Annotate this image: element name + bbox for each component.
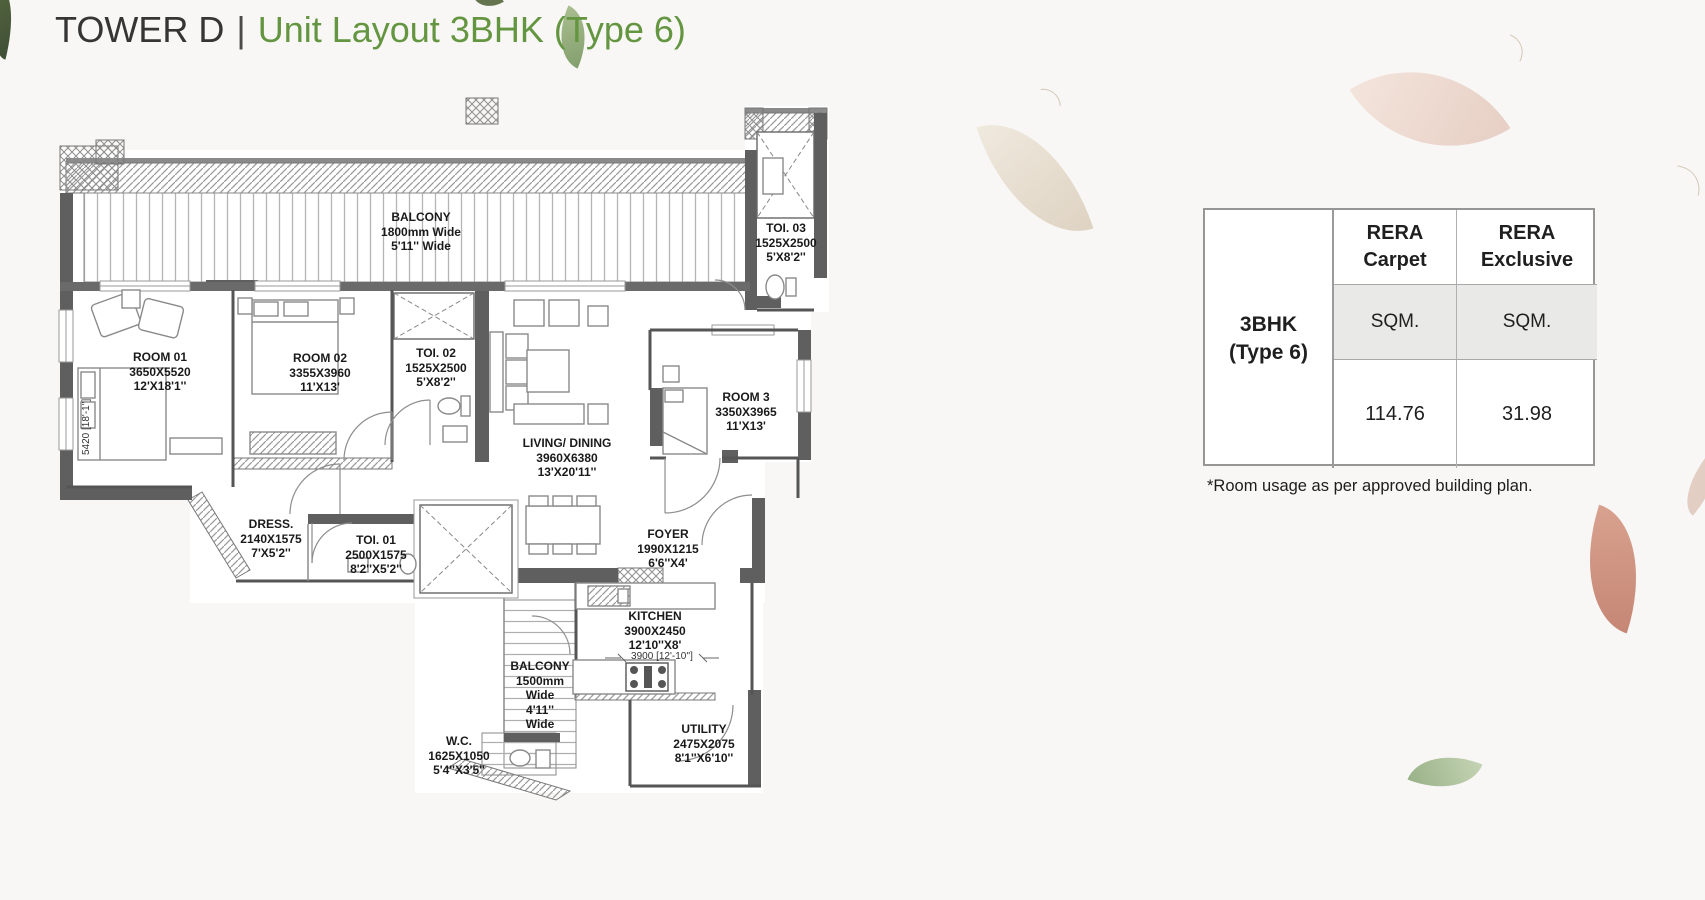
kitchen-dimension-note: 3900 [12'-10''] — [631, 650, 693, 665]
footnote: *Room usage as per approved building pla… — [1207, 477, 1533, 496]
room-label-toi-03: TOI. 03 1525X2500 5'X8'2'' — [755, 221, 816, 265]
table-value-exclusive: 31.98 — [1457, 360, 1597, 468]
table-header-rera-exclusive: RERA Exclusive — [1457, 210, 1597, 285]
room-label-dress: DRESS. 2140X1575 7'X5'2'' — [240, 517, 301, 561]
table-value-carpet: 114.76 — [1334, 360, 1457, 468]
title-separator: | — [236, 9, 245, 50]
rera-area-table: 3BHK (Type 6) RERA Carpet RERA Exclusive… — [1203, 208, 1595, 466]
room-label-toi-02: TOI. 02 1525X2500 5'X8'2'' — [405, 346, 466, 390]
table-row-header: 3BHK (Type 6) — [1205, 210, 1334, 468]
room-label-room-3: ROOM 3 3350X3965 11'X13' — [715, 390, 776, 434]
room-label-balcony-bottom: BALCONY 1500mm Wide 4'11'' Wide — [510, 659, 569, 732]
page: { "title": {"tower": "TOWER D", "separat… — [0, 0, 1705, 900]
room-label-room-01: ROOM 01 3650X5520 12'X18'1'' — [129, 350, 190, 394]
room-label-utility: UTILITY 2475X2075 8'1''X6'10'' — [673, 722, 734, 766]
title-unit-layout: Unit Layout 3BHK (Type 6) — [258, 9, 686, 50]
room-label-kitchen: KITCHEN 3900X2450 12'10''X8' — [624, 609, 685, 653]
title-tower: TOWER D — [55, 9, 224, 50]
room-label-toi-01: TOI. 01 2500X1575 8'2''X5'2'' — [345, 533, 406, 577]
table-unit-carpet: SQM. — [1334, 285, 1457, 360]
table-unit-exclusive: SQM. — [1457, 285, 1597, 360]
room-label-wc: W.C. 1625X1050 5'4''X3'5'' — [428, 734, 489, 778]
page-title: TOWER D|Unit Layout 3BHK (Type 6) — [55, 8, 686, 52]
room-label-foyer: FOYER 1990X1215 6'6''X4' — [637, 527, 698, 571]
room-label-room-02: ROOM 02 3355X3960 11'X13' — [289, 351, 350, 395]
table-header-rera-carpet: RERA Carpet — [1334, 210, 1457, 285]
room-label-living-dining: LIVING/ DINING 3960X6380 13'X20'11'' — [523, 436, 612, 480]
room-label-balcony-top: BALCONY 1800mm Wide 5'11'' Wide — [381, 210, 461, 254]
room01-dimension-note: 5420 [18'-1''] — [80, 399, 95, 455]
